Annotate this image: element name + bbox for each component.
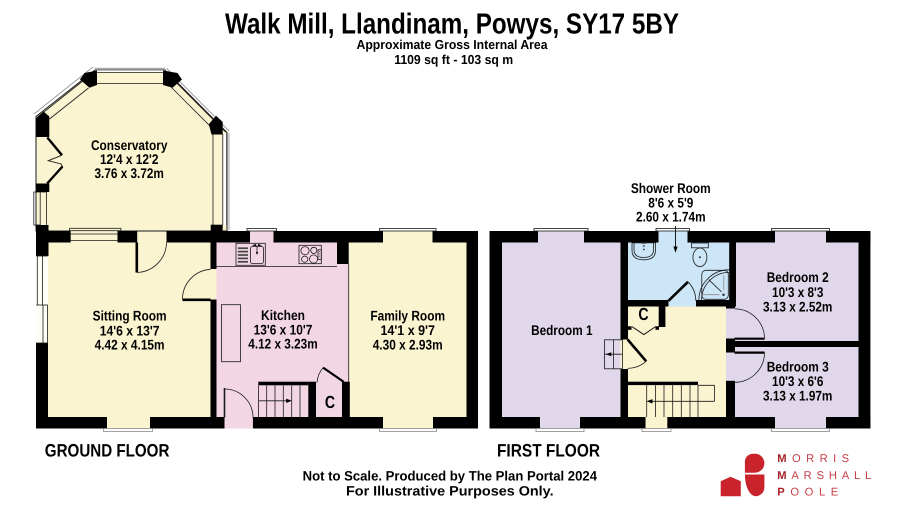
svg-text:3.13 x 1.97m: 3.13 x 1.97m [763,388,832,404]
svg-text:3.76 x 3.72m: 3.76 x 3.72m [95,165,164,181]
svg-text:Bedroom 1: Bedroom 1 [531,322,593,338]
svg-text:MARSHALL: MARSHALL [777,470,876,482]
svg-text:Approximate Gross Internal Are: Approximate Gross Internal Area [357,37,549,52]
svg-text:2.60 x 1.74m: 2.60 x 1.74m [636,209,706,225]
svg-text:POOLE: POOLE [777,487,844,499]
svg-text:Walk Mill, Llandinam, Powys, S: Walk Mill, Llandinam, Powys, SY17 5BY [225,9,679,41]
svg-text:GROUND FLOOR: GROUND FLOOR [45,440,170,460]
svg-text:Family Room: Family Room [370,307,445,323]
svg-text:Not to Scale. Produced by The: Not to Scale. Produced by The Plan Porta… [303,468,598,483]
svg-text:C: C [638,304,648,324]
svg-text:FIRST FLOOR: FIRST FLOOR [497,440,600,460]
svg-text:4.30 x 2.93m: 4.30 x 2.93m [373,336,443,352]
svg-text:1109 sq ft - 103 sq m: 1109 sq ft - 103 sq m [394,52,513,67]
svg-text:Bedroom 3: Bedroom 3 [767,359,829,375]
svg-text:4.42 x 4.15m: 4.42 x 4.15m [95,337,165,353]
svg-text:Sitting Room: Sitting Room [93,308,167,324]
svg-text:Bedroom 2: Bedroom 2 [767,269,829,285]
svg-text:MORRIS: MORRIS [777,453,854,465]
svg-text:For Illustrative Purposes Only: For Illustrative Purposes Only. [346,483,554,498]
svg-text:4.12 x 3.23m: 4.12 x 3.23m [248,336,317,352]
svg-text:C: C [325,392,335,412]
svg-text:3.13 x 2.52m: 3.13 x 2.52m [763,298,832,314]
